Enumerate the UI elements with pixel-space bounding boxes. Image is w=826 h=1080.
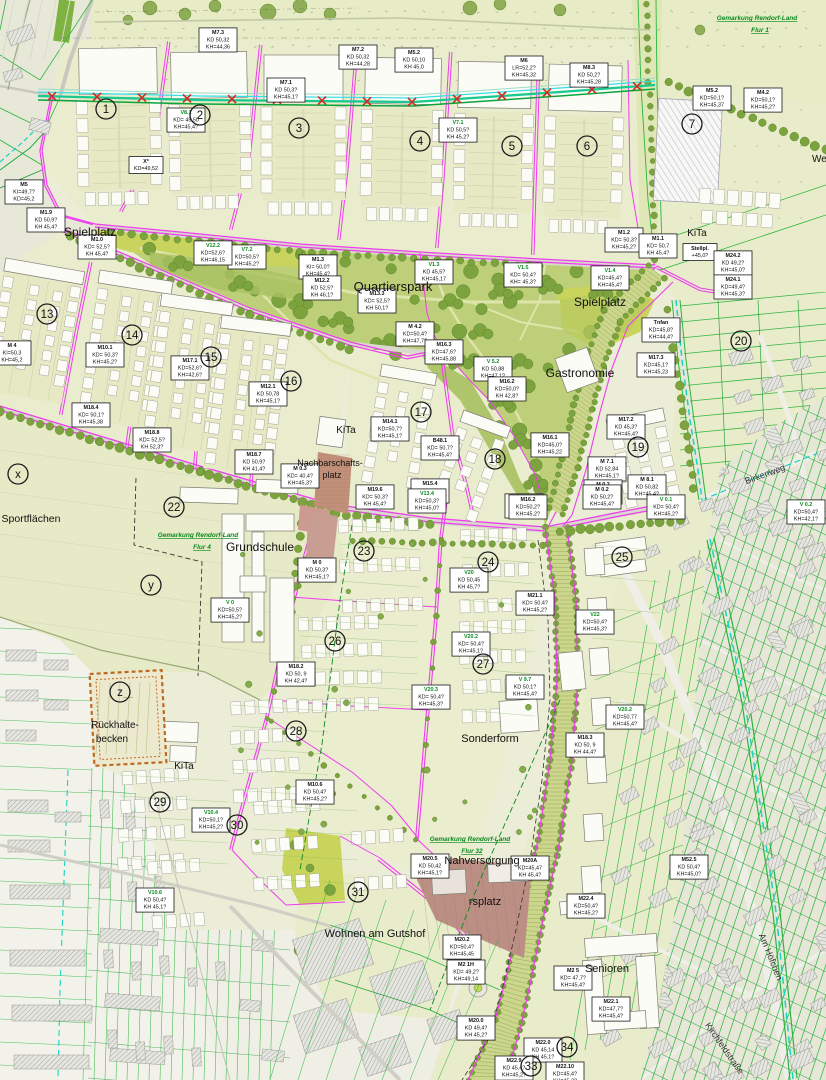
svg-text:KH=45,2?: KH=45,2? bbox=[751, 105, 775, 111]
svg-text:KI=50,3: KI=50,3 bbox=[3, 350, 22, 356]
svg-text:M22.10: M22.10 bbox=[556, 1064, 574, 1070]
svg-text:M4.2: M4.2 bbox=[757, 90, 769, 96]
svg-text:KH=45,4?: KH=45,4? bbox=[428, 452, 452, 458]
svg-text:KD 50,3?: KD 50,3? bbox=[275, 87, 297, 93]
svg-text:M1.9: M1.9 bbox=[40, 210, 52, 216]
svg-text:becken: becken bbox=[96, 734, 128, 745]
svg-text:KH 44,4?: KH 44,4? bbox=[574, 750, 596, 756]
svg-text:Nachbarschafts-: Nachbarschafts- bbox=[297, 458, 363, 468]
svg-text:KH 45,4?: KH 45,4? bbox=[86, 251, 108, 257]
svg-text:KD=50,1?: KD=50,1? bbox=[700, 95, 724, 101]
svg-text:27: 27 bbox=[477, 659, 490, 671]
svg-text:M5: M5 bbox=[20, 182, 28, 188]
svg-text:KD=49,4?: KD=49,4? bbox=[721, 284, 745, 290]
svg-text:KD= 52,5?: KD= 52,5? bbox=[84, 244, 110, 250]
svg-text:M10.6: M10.6 bbox=[308, 782, 323, 788]
svg-text:V10.6: V10.6 bbox=[148, 890, 162, 896]
svg-text:Grundschule: Grundschule bbox=[226, 540, 294, 554]
svg-text:M7.2: M7.2 bbox=[352, 47, 364, 53]
svg-text:Stellpl.: Stellpl. bbox=[691, 246, 709, 252]
svg-text:KI=49,7?: KI=49,7? bbox=[13, 189, 35, 195]
svg-text:V20.2: V20.2 bbox=[618, 707, 632, 713]
svg-text:B48.1: B48.1 bbox=[433, 438, 447, 444]
svg-text:KD=50,5?: KD=50,5? bbox=[235, 254, 259, 260]
svg-text:M1.1: M1.1 bbox=[652, 236, 664, 242]
svg-text:KI= 50,0?: KI= 50,0? bbox=[306, 264, 329, 270]
svg-text:KD=45,4?: KD=45,4? bbox=[553, 1071, 577, 1077]
svg-text:13: 13 bbox=[41, 309, 54, 321]
svg-text:KD= 47,7?: KD= 47,7? bbox=[560, 975, 586, 981]
svg-text:KH=45,1?: KH=45,1? bbox=[305, 575, 329, 581]
svg-text:KH 41,4?: KH 41,4? bbox=[243, 466, 265, 472]
svg-text:KH 52,3?: KH 52,3? bbox=[141, 444, 163, 450]
svg-text:M18.7: M18.7 bbox=[247, 452, 262, 458]
svg-text:V22: V22 bbox=[590, 612, 600, 618]
svg-text:KD 50,2?: KD 50,2? bbox=[591, 494, 613, 500]
svg-text:KD 50,78: KD 50,78 bbox=[257, 391, 279, 397]
svg-text:KD=45,8?: KD=45,8? bbox=[649, 327, 673, 333]
svg-text:KH=45,38: KH=45,38 bbox=[79, 419, 103, 425]
svg-text:KD=45,0?: KD=45,0? bbox=[538, 442, 562, 448]
svg-text:KD=50,1?: KD=50,1? bbox=[751, 97, 775, 103]
svg-text:KD=50,0?: KD=50,0? bbox=[495, 386, 519, 392]
svg-text:M 7.1: M 7.1 bbox=[600, 459, 613, 465]
svg-text:KD 50,9?: KD 50,9? bbox=[243, 459, 265, 465]
svg-text:M 4.2: M 4.2 bbox=[408, 324, 421, 330]
svg-text:KD= 50,3?: KD= 50,3? bbox=[611, 237, 637, 243]
svg-text:KD=47,7?: KD=47,7? bbox=[599, 1006, 623, 1012]
svg-text:3: 3 bbox=[296, 123, 302, 135]
svg-text:M17.1: M17.1 bbox=[183, 358, 198, 364]
svg-text:7: 7 bbox=[689, 119, 695, 131]
svg-text:KD= 45,50: KD= 45,50 bbox=[173, 117, 199, 123]
svg-text:V1.3: V1.3 bbox=[428, 262, 439, 268]
svg-text:KH=45,2?: KH=45,2? bbox=[574, 911, 598, 917]
svg-text:KH=45,2?: KH=45,2? bbox=[654, 512, 678, 518]
svg-text:KD 50, 9: KD 50, 9 bbox=[575, 742, 596, 748]
svg-text:y: y bbox=[148, 580, 154, 592]
svg-text:KH=45,37: KH=45,37 bbox=[700, 103, 724, 109]
svg-text:KD 50,2?: KD 50,2? bbox=[578, 72, 600, 78]
svg-text:M15.4: M15.4 bbox=[423, 481, 438, 487]
svg-text:M52.5: M52.5 bbox=[682, 857, 697, 863]
svg-text:18: 18 bbox=[489, 454, 502, 466]
svg-text:M17.2: M17.2 bbox=[619, 417, 634, 423]
svg-text:M17.3: M17.3 bbox=[649, 355, 664, 361]
svg-text:KH=44,36: KH=44,36 bbox=[206, 45, 230, 51]
svg-text:KD 50,45: KD 50,45 bbox=[458, 577, 480, 583]
svg-text:Weiter: Weiter bbox=[812, 154, 826, 165]
svg-text:29: 29 bbox=[154, 797, 167, 809]
svg-text:33: 33 bbox=[525, 1061, 538, 1073]
svg-text:Senioren: Senioren bbox=[585, 963, 629, 975]
svg-text:KH=45,4?: KH=45,4? bbox=[613, 722, 637, 728]
svg-text:KH 42,4?: KH 42,4? bbox=[285, 679, 307, 685]
svg-text:KH 45,4?: KH 45,4? bbox=[647, 250, 669, 256]
svg-text:KD 45,3?: KD 45,3? bbox=[615, 424, 637, 430]
svg-text:M14.1: M14.1 bbox=[383, 419, 398, 425]
svg-text:M18.3: M18.3 bbox=[578, 735, 593, 741]
svg-text:KH=45,2?: KH=45,2? bbox=[523, 608, 547, 614]
svg-text:KD 50,32: KD 50,32 bbox=[347, 54, 369, 60]
svg-text:KH=45,4?: KH=45,4? bbox=[598, 282, 622, 288]
svg-text:KD= 50,7?: KD= 50,7? bbox=[427, 445, 453, 451]
svg-text:KH=45,1?: KH=45,1? bbox=[256, 398, 280, 404]
svg-text:KD=49,52: KD=49,52 bbox=[134, 166, 158, 172]
svg-text:M8.3: M8.3 bbox=[583, 65, 595, 71]
svg-text:M20.5: M20.5 bbox=[423, 856, 438, 862]
svg-text:V1.5: V1.5 bbox=[517, 265, 528, 271]
svg-text:M7.3: M7.3 bbox=[212, 30, 224, 36]
svg-text:KD=50,4?: KD=50,4? bbox=[403, 331, 427, 337]
svg-text:KD=50,4?: KD=50,4? bbox=[450, 944, 474, 950]
svg-text:KH=45,1?: KH=45,1? bbox=[595, 473, 619, 479]
svg-text:KD=50,3?: KD=50,3? bbox=[415, 498, 439, 504]
svg-text:KH=45,32: KH=45,32 bbox=[512, 73, 536, 79]
svg-text:KH=45,2?: KH=45,2? bbox=[199, 825, 223, 831]
svg-text:KD= 50,7: KD= 50,7 bbox=[647, 243, 670, 249]
svg-text:KH=45,2: KH=45,2 bbox=[1, 357, 22, 363]
svg-text:KD 50,4?: KD 50,4? bbox=[144, 897, 166, 903]
svg-text:KH=45,2?: KH=45,2? bbox=[612, 244, 636, 250]
svg-text:V 0.1: V 0.1 bbox=[660, 497, 673, 503]
svg-text:KD= 50,4?: KD= 50,4? bbox=[510, 272, 536, 278]
svg-text:KH=45,3?: KH=45,3? bbox=[583, 627, 607, 633]
svg-text:V7.1: V7.1 bbox=[452, 120, 463, 126]
svg-text:1: 1 bbox=[103, 104, 109, 116]
svg-text:KH=45,22: KH=45,22 bbox=[538, 449, 562, 455]
svg-text:LR=52,2?: LR=52,2? bbox=[512, 65, 536, 71]
svg-text:Spielplatz: Spielplatz bbox=[574, 295, 626, 309]
svg-text:23: 23 bbox=[358, 546, 371, 558]
svg-text:KH 42,8?: KH 42,8? bbox=[496, 393, 518, 399]
svg-text:M6: M6 bbox=[520, 58, 528, 64]
svg-text:KH=42,6?: KH=42,6? bbox=[178, 372, 202, 378]
svg-text:V 9.7: V 9.7 bbox=[519, 677, 532, 683]
svg-text:25: 25 bbox=[616, 552, 629, 564]
svg-text:M 0.2: M 0.2 bbox=[595, 487, 608, 493]
svg-text:KD=45,1?: KD=45,1? bbox=[644, 362, 668, 368]
svg-text:KD 50,1?: KD 50,1? bbox=[514, 684, 536, 690]
svg-text:KH=45,3?: KH=45,3? bbox=[288, 480, 312, 486]
svg-text:KD=50,5?: KD=50,5? bbox=[218, 607, 242, 613]
svg-text:KH=45,1?: KH=45,1? bbox=[459, 649, 483, 655]
svg-text:KH=45,0?: KH=45,0? bbox=[415, 505, 439, 511]
svg-text:KD 45,14: KD 45,14 bbox=[532, 1047, 554, 1053]
svg-text:M1.3: M1.3 bbox=[312, 257, 324, 263]
svg-text:KH=45,2?: KH=45,2? bbox=[303, 797, 327, 803]
svg-text:KD= 40,4?: KD= 40,4? bbox=[287, 473, 313, 479]
svg-text:z: z bbox=[117, 687, 123, 699]
svg-text:Sonderform: Sonderform bbox=[461, 733, 518, 745]
svg-text:KD 50,88: KD 50,88 bbox=[482, 366, 504, 372]
svg-text:KD=52,6?: KD=52,6? bbox=[178, 365, 202, 371]
svg-text:KH=45,1?: KH=45,1? bbox=[418, 871, 442, 877]
svg-text:17: 17 bbox=[415, 407, 428, 419]
svg-text:X*: X* bbox=[143, 159, 150, 165]
svg-text:KH=45,0?: KH=45,0? bbox=[677, 872, 701, 878]
svg-text:Gastronomie: Gastronomie bbox=[546, 366, 615, 380]
svg-text:KD= 50,4?: KD= 50,4? bbox=[418, 694, 444, 700]
svg-text:KD=47,6?: KD=47,6? bbox=[432, 349, 456, 355]
svg-text:KD 50,3?: KD 50,3? bbox=[306, 567, 328, 573]
svg-text:M20.0: M20.0 bbox=[469, 1018, 484, 1024]
svg-text:Flur 32: Flur 32 bbox=[461, 848, 483, 855]
svg-text:V1.4: V1.4 bbox=[604, 268, 615, 274]
svg-text:M18.4: M18.4 bbox=[84, 405, 99, 411]
svg-text:Quartierspark: Quartierspark bbox=[354, 279, 433, 294]
svg-text:31: 31 bbox=[352, 887, 365, 899]
svg-text:KH 45,2?: KH 45,2? bbox=[447, 134, 469, 140]
svg-text:Spielplatz: Spielplatz bbox=[64, 225, 116, 239]
svg-text:Gemarkung Rendorf-Land: Gemarkung Rendorf-Land bbox=[430, 836, 512, 843]
svg-text:+45,0?: +45,0? bbox=[692, 253, 709, 259]
svg-text:KD=50,4?: KD=50,4? bbox=[794, 509, 818, 515]
svg-text:28: 28 bbox=[290, 726, 303, 738]
svg-text:M20.2: M20.2 bbox=[455, 937, 470, 943]
svg-text:KH=45,2?: KH=45,2? bbox=[516, 512, 540, 518]
svg-text:M12.1: M12.1 bbox=[261, 384, 276, 390]
svg-text:KD 50, 9: KD 50, 9 bbox=[286, 671, 307, 677]
svg-text:KD=45,4?: KD=45,4? bbox=[598, 275, 622, 281]
svg-text:KD 49,4?: KD 49,4? bbox=[465, 1025, 487, 1031]
svg-text:M21.1: M21.1 bbox=[528, 593, 543, 599]
svg-text:platz: platz bbox=[322, 470, 342, 480]
svg-text:V20: V20 bbox=[464, 570, 474, 576]
svg-text:M24.2: M24.2 bbox=[726, 253, 741, 259]
svg-text:26: 26 bbox=[329, 636, 342, 648]
svg-text:M12.2: M12.2 bbox=[315, 278, 330, 284]
svg-text:KH=45,2?: KH=45,2? bbox=[235, 261, 259, 267]
svg-text:34: 34 bbox=[561, 1042, 574, 1054]
svg-text:KD=50,77: KD=50,77 bbox=[613, 714, 637, 720]
svg-text:KH 50,1?: KH 50,1? bbox=[366, 305, 388, 311]
svg-text:2: 2 bbox=[197, 110, 203, 122]
svg-text:14: 14 bbox=[126, 330, 139, 342]
svg-text:KD=50,2?: KD=50,2? bbox=[516, 504, 540, 510]
svg-text:KD 49,2?: KD 49,2? bbox=[722, 260, 744, 266]
svg-text:M22.9: M22.9 bbox=[507, 1058, 522, 1064]
svg-text:V12.2: V12.2 bbox=[206, 243, 220, 249]
svg-text:5: 5 bbox=[509, 141, 515, 153]
svg-text:4: 4 bbox=[417, 136, 424, 148]
svg-text:KD= 52,5?: KD= 52,5? bbox=[364, 298, 390, 304]
svg-text:V20.3: V20.3 bbox=[424, 687, 438, 693]
svg-text:M22.1: M22.1 bbox=[604, 999, 619, 1005]
svg-text:KD=45,2: KD=45,2 bbox=[13, 196, 34, 202]
svg-text:M7.1: M7.1 bbox=[280, 80, 292, 86]
svg-text:KH=45,88: KH=45,88 bbox=[432, 356, 456, 362]
svg-text:Gemarkung Rendorf-Land: Gemarkung Rendorf-Land bbox=[158, 532, 240, 539]
svg-text:KD 50,32: KD 50,32 bbox=[207, 37, 229, 43]
svg-text:KH=46,15: KH=46,15 bbox=[201, 257, 225, 263]
svg-text:V 0.2: V 0.2 bbox=[800, 502, 813, 508]
svg-text:Flur 4: Flur 4 bbox=[193, 544, 211, 551]
svg-text:KH=45,4?: KH=45,4? bbox=[561, 983, 585, 989]
svg-text:KH=42,1?: KH=42,1? bbox=[794, 517, 818, 523]
svg-text:Sportflächen: Sportflächen bbox=[2, 513, 61, 525]
svg-text:KH=45,0?: KH=45,0? bbox=[721, 267, 745, 273]
svg-text:KD=50,1?: KD=50,1? bbox=[199, 817, 223, 823]
svg-text:M1.2: M1.2 bbox=[618, 230, 630, 236]
svg-text:V20.2: V20.2 bbox=[464, 634, 478, 640]
svg-text:KH=45,2?: KH=45,2? bbox=[502, 1073, 526, 1079]
svg-text:KD 45,5?: KD 45,5? bbox=[423, 269, 445, 275]
svg-text:KD 50,10: KD 50,10 bbox=[403, 57, 425, 63]
svg-text:KD= 50,4?: KD= 50,4? bbox=[522, 600, 548, 606]
svg-text:KH=45,2?: KH=45,2? bbox=[93, 359, 117, 365]
svg-text:M16.1: M16.1 bbox=[543, 435, 558, 441]
svg-text:M16.2: M16.2 bbox=[521, 497, 536, 503]
svg-text:M19.6: M19.6 bbox=[368, 487, 383, 493]
svg-text:M 4: M 4 bbox=[8, 343, 17, 349]
svg-text:KD=50,4?: KD=50,4? bbox=[583, 619, 607, 625]
svg-text:KH 45,7?: KH 45,7? bbox=[458, 585, 480, 591]
svg-text:KH 45,1?: KH 45,1? bbox=[144, 905, 166, 911]
svg-text:KH 45,4?: KH 45,4? bbox=[364, 501, 386, 507]
svg-text:KD= 49,2?: KD= 49,2? bbox=[453, 969, 479, 975]
svg-text:M10.1: M10.1 bbox=[98, 345, 113, 351]
svg-text:KH= 45,3?: KH= 45,3? bbox=[510, 279, 536, 285]
svg-text:Flur 1: Flur 1 bbox=[751, 27, 769, 34]
svg-text:KH=45,28: KH=45,28 bbox=[577, 80, 601, 86]
svg-text:KH=47,7?: KH=47,7? bbox=[403, 338, 427, 344]
svg-text:KH=45,4?: KH=45,4? bbox=[174, 124, 198, 130]
svg-text:Nahversorgung: Nahversorgung bbox=[444, 855, 519, 867]
svg-text:22: 22 bbox=[168, 502, 181, 514]
svg-text:KH 45,0: KH 45,0 bbox=[404, 65, 423, 71]
svg-text:KD=50,7?: KD=50,7? bbox=[378, 426, 402, 432]
svg-text:KH 45,2?: KH 45,2? bbox=[465, 1033, 487, 1039]
svg-text:V 5.2: V 5.2 bbox=[487, 359, 500, 365]
svg-text:M18.2: M18.2 bbox=[289, 664, 304, 670]
svg-text:16: 16 bbox=[285, 376, 298, 388]
svg-text:KD 52,84: KD 52,84 bbox=[596, 466, 618, 472]
svg-text:M18.8: M18.8 bbox=[145, 430, 160, 436]
svg-text:6: 6 bbox=[584, 141, 590, 153]
svg-text:KH=49,14: KH=49,14 bbox=[454, 977, 478, 983]
svg-text:KH=44,4?: KH=44,4? bbox=[649, 334, 673, 340]
svg-text:V10.4: V10.4 bbox=[204, 810, 218, 816]
svg-text:KH=45,1?: KH=45,1? bbox=[274, 95, 298, 101]
svg-text:M16.2: M16.2 bbox=[500, 379, 515, 385]
svg-text:KD= 50,4?: KD= 50,4? bbox=[458, 641, 484, 647]
svg-text:KiTa: KiTa bbox=[687, 228, 707, 239]
svg-text:M24.1: M24.1 bbox=[726, 277, 741, 283]
svg-text:KH 45,4?: KH 45,4? bbox=[35, 224, 57, 230]
svg-text:KH=45,4?: KH=45,4? bbox=[599, 1014, 623, 1020]
svg-text:KiTa: KiTa bbox=[336, 425, 356, 436]
svg-text:15: 15 bbox=[205, 352, 218, 364]
svg-text:M20A: M20A bbox=[523, 858, 537, 864]
svg-text:KD 50,4?: KD 50,4? bbox=[678, 864, 700, 870]
svg-text:KH=45,4?: KH=45,4? bbox=[590, 501, 614, 507]
svg-text:KD= 50,4?: KD= 50,4? bbox=[653, 504, 679, 510]
svg-text:19: 19 bbox=[632, 442, 645, 454]
svg-text:M 0: M 0 bbox=[313, 560, 322, 566]
svg-text:V13.4: V13.4 bbox=[420, 491, 434, 497]
svg-text:KD 50,4?: KD 50,4? bbox=[304, 789, 326, 795]
svg-text:KD= 50,1?: KD= 50,1? bbox=[78, 412, 104, 418]
svg-text:Rückhalte-: Rückhalte- bbox=[91, 720, 139, 731]
svg-text:KiTa: KiTa bbox=[174, 761, 194, 772]
svg-text:rsplatz: rsplatz bbox=[469, 896, 501, 908]
svg-text:M16.3: M16.3 bbox=[437, 342, 452, 348]
svg-text:Tnfan: Tnfan bbox=[654, 320, 669, 326]
svg-text:KH=45,3?: KH=45,3? bbox=[721, 291, 745, 297]
svg-text:24: 24 bbox=[482, 557, 495, 569]
svg-text:KH=45,4?: KH=45,4? bbox=[513, 692, 537, 698]
svg-text:KH=45,23: KH=45,23 bbox=[644, 369, 668, 375]
svg-text:M2 1H: M2 1H bbox=[458, 962, 474, 968]
svg-text:M5.2: M5.2 bbox=[408, 50, 420, 56]
svg-text:30: 30 bbox=[231, 820, 244, 832]
svg-text:V 0: V 0 bbox=[226, 600, 234, 606]
svg-text:M5.2: M5.2 bbox=[706, 88, 718, 94]
svg-text:M22.4: M22.4 bbox=[579, 896, 594, 902]
svg-text:KD 50,82: KD 50,82 bbox=[636, 484, 658, 490]
svg-text:KD=50,4?: KD=50,4? bbox=[574, 903, 598, 909]
svg-text:KH=45,4?: KH=45,4? bbox=[614, 431, 638, 437]
svg-text:Wohnen am Gutshof: Wohnen am Gutshof bbox=[325, 928, 427, 940]
svg-text:KH 46,1?: KH 46,1? bbox=[311, 292, 333, 298]
svg-text:KH 45,4?: KH 45,4? bbox=[519, 873, 541, 879]
svg-text:x: x bbox=[15, 469, 21, 481]
svg-text:KD 50,42: KD 50,42 bbox=[419, 863, 441, 869]
svg-text:M22.0: M22.0 bbox=[536, 1040, 551, 1046]
svg-text:KD 50,9?: KD 50,9? bbox=[35, 217, 57, 223]
svg-text:KH=45,3?: KH=45,3? bbox=[419, 702, 443, 708]
svg-text:M 8.1: M 8.1 bbox=[640, 477, 653, 483]
svg-text:KD= 50,3?: KD= 50,3? bbox=[92, 352, 118, 358]
svg-text:M2 5: M2 5 bbox=[567, 968, 579, 974]
svg-text:Gemarkung Rendorf-Land: Gemarkung Rendorf-Land bbox=[717, 15, 799, 22]
svg-text:KD=52,6?: KD=52,6? bbox=[201, 250, 225, 256]
svg-text:20: 20 bbox=[735, 336, 748, 348]
svg-text:KD= 52,5?: KD= 52,5? bbox=[139, 437, 165, 443]
svg-text:V7.2: V7.2 bbox=[241, 247, 252, 253]
svg-text:KD=45,47: KD=45,47 bbox=[518, 865, 542, 871]
svg-text:KH=44,28: KH=44,28 bbox=[346, 62, 370, 68]
svg-text:KH=45,45: KH=45,45 bbox=[450, 952, 474, 958]
svg-text:KH=45,1?: KH=45,1? bbox=[378, 433, 402, 439]
svg-text:KD 50,5?: KD 50,5? bbox=[447, 127, 469, 133]
svg-text:KD= 50,3?: KD= 50,3? bbox=[362, 494, 388, 500]
svg-text:KH=45,2?: KH=45,2? bbox=[218, 615, 242, 621]
svg-text:KD 52,5?: KD 52,5? bbox=[311, 285, 333, 291]
